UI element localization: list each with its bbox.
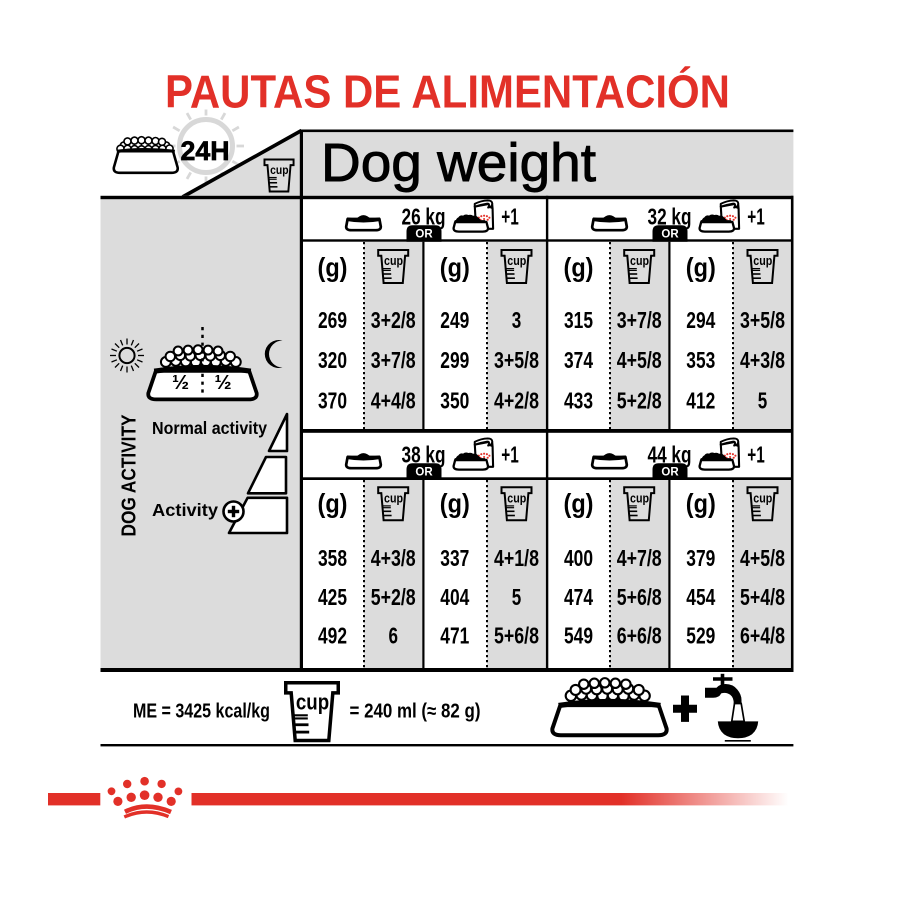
svg-text:269: 269 xyxy=(318,307,347,333)
svg-text:DOG ACTIVITY: DOG ACTIVITY xyxy=(119,414,141,537)
svg-text:404: 404 xyxy=(440,584,469,610)
svg-text:400: 400 xyxy=(564,545,593,571)
svg-text:3+7/8: 3+7/8 xyxy=(371,347,416,373)
svg-text:(g): (g) xyxy=(564,489,594,519)
svg-text:471: 471 xyxy=(440,623,469,649)
svg-text:5+6/8: 5+6/8 xyxy=(617,584,662,610)
svg-text:Normal activity: Normal activity xyxy=(152,418,267,438)
svg-text:24H: 24H xyxy=(181,136,230,166)
svg-text:+1: +1 xyxy=(501,204,519,230)
svg-text:337: 337 xyxy=(440,545,469,571)
svg-text:320: 320 xyxy=(318,347,347,373)
svg-text:4+4/8: 4+4/8 xyxy=(371,388,416,414)
svg-text:299: 299 xyxy=(440,347,469,373)
svg-text:353: 353 xyxy=(686,347,715,373)
svg-text:374: 374 xyxy=(564,347,593,373)
svg-text:(g): (g) xyxy=(318,253,348,283)
svg-text:= 240 ml (≈ 82 g): = 240 ml (≈ 82 g) xyxy=(350,701,481,723)
svg-text:5: 5 xyxy=(758,388,768,414)
svg-text:OR: OR xyxy=(661,229,679,241)
svg-text:5+4/8: 5+4/8 xyxy=(740,584,785,610)
svg-text:249: 249 xyxy=(440,307,469,333)
svg-text:OR: OR xyxy=(415,229,433,241)
svg-text:Activity: Activity xyxy=(152,500,218,520)
svg-text:433: 433 xyxy=(564,388,593,414)
svg-text:379: 379 xyxy=(686,545,715,571)
svg-text:3+5/8: 3+5/8 xyxy=(494,347,539,373)
svg-text:474: 474 xyxy=(564,584,593,610)
svg-text:3+2/8: 3+2/8 xyxy=(371,307,416,333)
svg-text:5+6/8: 5+6/8 xyxy=(494,623,539,649)
svg-text:+1: +1 xyxy=(747,442,765,468)
svg-text:(g): (g) xyxy=(440,489,470,519)
svg-text:294: 294 xyxy=(686,307,715,333)
svg-text:5: 5 xyxy=(512,584,522,610)
svg-text:4+5/8: 4+5/8 xyxy=(740,545,785,571)
svg-text:OR: OR xyxy=(415,467,433,479)
svg-text:5+2/8: 5+2/8 xyxy=(617,388,662,414)
svg-text:6: 6 xyxy=(388,623,398,649)
svg-text:4+1/8: 4+1/8 xyxy=(494,545,539,571)
svg-text:½: ½ xyxy=(172,371,189,394)
svg-text:Dog weight: Dog weight xyxy=(321,133,596,193)
svg-text:6+6/8: 6+6/8 xyxy=(617,623,662,649)
svg-text:549: 549 xyxy=(564,623,593,649)
svg-text:6+4/8: 6+4/8 xyxy=(740,623,785,649)
svg-text:4+2/8: 4+2/8 xyxy=(494,388,539,414)
svg-text:425: 425 xyxy=(318,584,347,610)
svg-text:3+5/8: 3+5/8 xyxy=(740,307,785,333)
svg-text:492: 492 xyxy=(318,623,347,649)
svg-text:(g): (g) xyxy=(440,253,470,283)
svg-text:3: 3 xyxy=(512,307,522,333)
svg-text:4+3/8: 4+3/8 xyxy=(371,545,416,571)
svg-text:PAUTAS DE ALIMENTACIÓN: PAUTAS DE ALIMENTACIÓN xyxy=(165,66,730,118)
svg-text:315: 315 xyxy=(564,307,593,333)
svg-text:454: 454 xyxy=(686,584,715,610)
svg-text:412: 412 xyxy=(686,388,715,414)
svg-text:(g): (g) xyxy=(318,489,348,519)
svg-text:+1: +1 xyxy=(747,204,765,230)
svg-text:4+3/8: 4+3/8 xyxy=(740,347,785,373)
svg-text:5+2/8: 5+2/8 xyxy=(371,584,416,610)
svg-text:+1: +1 xyxy=(501,442,519,468)
svg-text:350: 350 xyxy=(440,388,469,414)
svg-text:(g): (g) xyxy=(686,253,716,283)
svg-text:3+7/8: 3+7/8 xyxy=(617,307,662,333)
svg-text:4+5/8: 4+5/8 xyxy=(617,347,662,373)
svg-text:4+7/8: 4+7/8 xyxy=(617,545,662,571)
svg-text:358: 358 xyxy=(318,545,347,571)
svg-text:½: ½ xyxy=(214,371,231,394)
svg-text:(g): (g) xyxy=(564,253,594,283)
svg-text:ME = 3425 kcal/kg: ME = 3425 kcal/kg xyxy=(133,701,270,723)
svg-text:(g): (g) xyxy=(686,489,716,519)
svg-text:370: 370 xyxy=(318,388,347,414)
svg-text:OR: OR xyxy=(661,467,679,479)
svg-text:529: 529 xyxy=(686,623,715,649)
